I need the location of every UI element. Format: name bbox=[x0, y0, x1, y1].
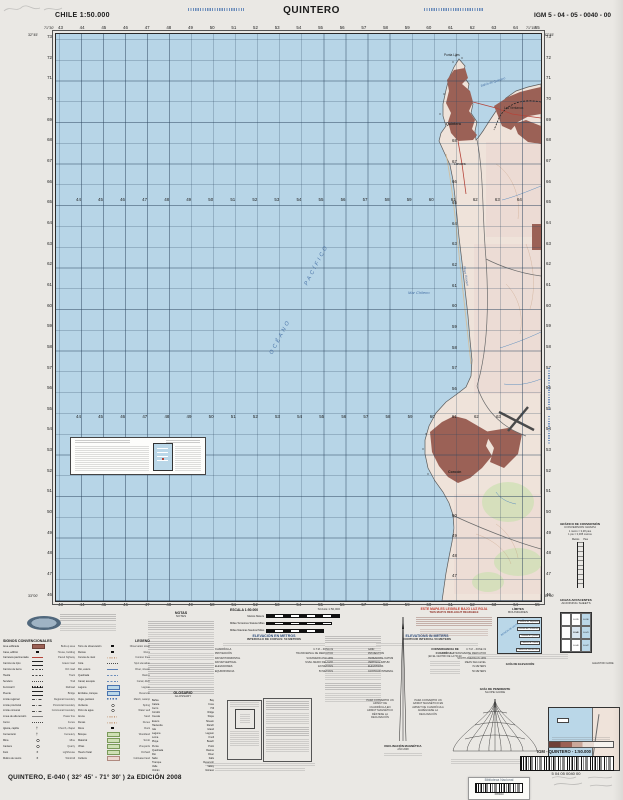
grid-number: 64 bbox=[42, 221, 52, 225]
grid-numbers-top: 4344454647484950515253545556575859606162… bbox=[58, 25, 540, 30]
grid-number: 46 bbox=[120, 414, 125, 419]
elev-interval-en: CONTOUR INTERVAL 50 METERS bbox=[368, 638, 486, 642]
grid-number: 65 bbox=[452, 201, 457, 205]
grid-number: 55 bbox=[318, 25, 323, 30]
grid-number: 62 bbox=[473, 197, 478, 202]
conversion-ruler bbox=[577, 542, 584, 588]
grid-number: 53 bbox=[275, 602, 280, 607]
boundary-item: Comuna de Quintero bbox=[519, 634, 540, 638]
grid-number: 65 bbox=[546, 200, 556, 204]
grid-number: 50 bbox=[42, 510, 52, 514]
grid-number: 53 bbox=[274, 197, 279, 202]
grid-number: 47 bbox=[145, 602, 150, 607]
legend-symbol bbox=[32, 668, 43, 671]
map-label: Las Ventanas bbox=[504, 106, 523, 110]
legend-symbol bbox=[32, 674, 43, 677]
azimuth-note-right: PARA CONVERTIR UN AZIMUT MAGNÉTICO EN AZ… bbox=[412, 699, 444, 716]
grid-number: 50 bbox=[210, 602, 215, 607]
legend-row: Molino de vientoWindmill bbox=[3, 755, 75, 761]
grid-id-box bbox=[227, 700, 262, 760]
grid-number: 49 bbox=[452, 534, 457, 538]
grid-number: 50 bbox=[209, 414, 214, 419]
sheet-title: QUINTERO bbox=[0, 5, 623, 16]
grid-number: 48 bbox=[166, 25, 171, 30]
grid-number: 49 bbox=[42, 531, 52, 535]
boundaries-title-en: BOUNDARIES bbox=[486, 611, 550, 615]
legend-symbol bbox=[107, 674, 118, 677]
grid-number: 59 bbox=[405, 602, 410, 607]
map-label: OCÉANO bbox=[269, 318, 293, 355]
scale-title-en: SCALE 1:50,000 bbox=[318, 608, 340, 612]
legend-symbol bbox=[107, 750, 120, 755]
grid-number: 60 bbox=[42, 304, 52, 308]
adjoining-sheet-cell bbox=[561, 613, 571, 626]
grid-number: 63 bbox=[452, 242, 457, 246]
grid-number: 57 bbox=[363, 414, 368, 419]
grid-number: 59 bbox=[452, 325, 457, 329]
library-stamp: Biblioteca Nacional 1565040 bbox=[468, 777, 530, 800]
boundaries-block: LÍMITES BOUNDARIES bbox=[486, 607, 550, 615]
grid-number: 46 bbox=[123, 602, 128, 607]
grid-number: 58 bbox=[452, 346, 457, 350]
map-label: Playa Ritoque bbox=[462, 266, 469, 286]
map-label: PACÍFICO bbox=[303, 243, 330, 286]
adjoining-sheet-cell: E-036 bbox=[581, 613, 591, 626]
igm-barcode-label: IGM - QUINTERO - 1:50.000 bbox=[514, 749, 614, 754]
boundary-item: Comuna de Puchuncaví bbox=[517, 627, 540, 631]
grid-numbers-left: 7372717069686766656463626160595857565554… bbox=[42, 35, 52, 597]
grid-number: 51 bbox=[42, 489, 52, 493]
legend-symbol bbox=[32, 727, 43, 730]
grid-number: 52 bbox=[253, 25, 258, 30]
grid-number: 57 bbox=[361, 25, 366, 30]
grid-number: 48 bbox=[164, 197, 169, 202]
grid-number: 52 bbox=[253, 414, 258, 419]
grid-number: 58 bbox=[383, 25, 388, 30]
map-area: OCÉANOPACÍFICOMar ChilenoPunta LilesBahí… bbox=[55, 33, 542, 602]
grid-number: 51 bbox=[546, 489, 556, 493]
scale-bar-nautical bbox=[266, 629, 324, 633]
igm-logo bbox=[27, 616, 61, 630]
grid-number: 46 bbox=[42, 593, 52, 597]
legend-symbol bbox=[107, 645, 118, 648]
adjoining-sheet-cell: E-047 bbox=[581, 639, 591, 652]
scale-bar3-label: Millas Náuticas Nautical Miles bbox=[230, 629, 264, 632]
legend-symbol bbox=[32, 745, 43, 748]
conversion-unit-pies: Pies bbox=[583, 538, 588, 541]
legend-symbol bbox=[32, 680, 43, 683]
grid-number: 45 bbox=[98, 414, 103, 419]
inset-map-thumbnail bbox=[153, 443, 173, 471]
legend-symbol bbox=[32, 661, 43, 666]
legend-symbol bbox=[32, 686, 43, 689]
grid-number: 64 bbox=[452, 222, 457, 226]
grid-number: 65 bbox=[42, 200, 52, 204]
adjoining-sheet-cell: E-040 bbox=[571, 626, 581, 639]
legend-symbol bbox=[32, 656, 43, 659]
grid-number: 59 bbox=[42, 324, 52, 328]
grid-number: 73 bbox=[546, 35, 556, 39]
grid-number: 54 bbox=[42, 427, 52, 431]
grid-number: 60 bbox=[546, 304, 556, 308]
igm-barcode bbox=[520, 756, 614, 771]
azimuth-note-left: PARA CONVERTIR UN AZIMUT DE CUADRÍCULA E… bbox=[366, 699, 394, 719]
elev-interval-es: INTERVALO DE CURVAS: 50 METROS bbox=[215, 638, 333, 642]
corner-lat-nw: 32°45' bbox=[28, 33, 38, 37]
margin-note-vertical2 bbox=[548, 416, 550, 444]
grid-number: 52 bbox=[252, 197, 257, 202]
grid-number: 61 bbox=[452, 414, 457, 419]
grid-number: 53 bbox=[275, 25, 280, 30]
grid-number: 58 bbox=[42, 345, 52, 349]
grid-number: 51 bbox=[231, 414, 236, 419]
map-label: Mar Chileno bbox=[408, 290, 430, 295]
grid-number: 60 bbox=[430, 414, 435, 419]
conversion-unit-metros: Metros bbox=[572, 538, 579, 541]
grid-number: 56 bbox=[340, 602, 345, 607]
grid-number: 46 bbox=[546, 593, 556, 597]
grid-number: 44 bbox=[76, 414, 81, 419]
grid-number: 60 bbox=[429, 197, 434, 202]
grid-number: 52 bbox=[546, 469, 556, 473]
grid-number: 63 bbox=[42, 242, 52, 246]
declination-label: DECLINACIÓN MAGNÉTICA AÑO 2008 bbox=[374, 744, 432, 758]
elevguide-title-es: GUÍA DE ELEVACIÓN bbox=[498, 662, 542, 666]
grid-number: 47 bbox=[142, 414, 147, 419]
legend-symbol bbox=[107, 656, 118, 659]
grid-number: 64 bbox=[546, 221, 556, 225]
scale-bar1-label: Metros Meters bbox=[230, 615, 264, 618]
legend-row: CultivosCultivated land bbox=[78, 755, 150, 761]
grid-number: 44 bbox=[80, 602, 85, 607]
grid-number: 56 bbox=[452, 387, 457, 391]
legend-symbol bbox=[32, 733, 43, 736]
library-stamp-number: 1565040 bbox=[469, 793, 529, 796]
grid-number: 55 bbox=[319, 197, 324, 202]
sheet-code: IGM 5 - 04 - 05 - 0040 - 00 bbox=[534, 12, 611, 19]
grid-number: 45 bbox=[101, 602, 106, 607]
grid-convergence-block: CONVERGENCIA DE CUADRÍCULA (EN EL CENTRO… bbox=[424, 647, 466, 677]
grid-number: 61 bbox=[42, 283, 52, 287]
grid-number: 56 bbox=[42, 386, 52, 390]
red-note-en: THIS MAP IS RED-LIGHT READABLE bbox=[412, 611, 496, 615]
adjoining-title-en: ADJOINING SHEETS bbox=[546, 602, 606, 606]
grid-number: 66 bbox=[452, 180, 457, 184]
legend-symbol bbox=[107, 744, 120, 749]
grid-number: 50 bbox=[210, 25, 215, 30]
grid-number: 63 bbox=[496, 414, 501, 419]
grid-number: 56 bbox=[341, 414, 346, 419]
boundaries-caption bbox=[468, 654, 568, 659]
grid-number: 47 bbox=[452, 574, 457, 578]
grid-number: 70 bbox=[42, 97, 52, 101]
boundary-item: Comuna de Viña del Mar bbox=[516, 648, 540, 652]
legend-symbol bbox=[107, 691, 120, 696]
grid-number: 58 bbox=[546, 345, 556, 349]
grid-number: 48 bbox=[452, 554, 457, 558]
grid-number: 58 bbox=[386, 414, 391, 419]
grid-number: 54 bbox=[296, 602, 301, 607]
adjoining-sheets-grid: E-035E-036E-040E-041E-046E-047 bbox=[560, 612, 592, 653]
red-light-note: ESTE MAPA ES LEGIBLE BAJO LUZ ROJA THIS … bbox=[412, 607, 496, 637]
legend-symbol bbox=[32, 651, 43, 654]
grid-number: 68 bbox=[42, 138, 52, 142]
grid-number: 62 bbox=[42, 262, 52, 266]
grid-number: 66 bbox=[546, 180, 556, 184]
grid-number: 55 bbox=[319, 414, 324, 419]
grid-number: 70 bbox=[546, 97, 556, 101]
grid-number: 62 bbox=[546, 262, 556, 266]
boundary-item: Comuna de Concón bbox=[520, 641, 540, 645]
grid-number: 61 bbox=[452, 284, 457, 288]
legend-symbol bbox=[107, 662, 118, 665]
grid-number: 72 bbox=[42, 56, 52, 60]
grid-number: 56 bbox=[340, 25, 345, 30]
legend-column-2: LEGEND Torre de observaciónObservation t… bbox=[78, 639, 150, 761]
grid-number: 59 bbox=[408, 414, 413, 419]
grid-number: 62 bbox=[470, 25, 475, 30]
grid-number: 49 bbox=[186, 197, 191, 202]
grid-number: 52 bbox=[42, 469, 52, 473]
scale-bar-statute bbox=[266, 622, 332, 626]
grid-number: 63 bbox=[546, 242, 556, 246]
grid-numbers-inner-row2: 4445464748495051525354555657585960616263 bbox=[76, 414, 501, 419]
grid-number: 59 bbox=[407, 197, 412, 202]
grid-numbers-inner-col: 68676665646362616059585756 bbox=[452, 139, 457, 391]
grid-number: 62 bbox=[474, 414, 479, 419]
grid-number: 64 bbox=[513, 25, 518, 30]
grid-number: 51 bbox=[231, 602, 236, 607]
grid-number: 48 bbox=[42, 551, 52, 555]
grid-number: 45 bbox=[101, 25, 106, 30]
grid-number: 54 bbox=[297, 414, 302, 419]
print-color-bar bbox=[548, 741, 614, 748]
legend-symbol bbox=[107, 685, 120, 690]
legend-symbol bbox=[107, 709, 118, 712]
sheet-footer: QUINTERO, E-040 ( 32° 45' - 71° 30' ) 2a… bbox=[8, 774, 182, 781]
grid-number: 60 bbox=[452, 304, 457, 308]
legend-symbol bbox=[32, 704, 43, 707]
library-stamp-barcode bbox=[475, 783, 523, 793]
grid-number: 57 bbox=[452, 366, 457, 370]
grid-number: 43 bbox=[58, 602, 63, 607]
grid-number: 57 bbox=[42, 366, 52, 370]
scale-block: ESCALA 1:50.000 SCALE 1:50,000 Metros Me… bbox=[230, 608, 340, 633]
legend-symbol bbox=[107, 727, 118, 730]
grid-number: 71 bbox=[546, 76, 556, 80]
map-label: Quintero bbox=[446, 122, 461, 126]
grid-number: 47 bbox=[142, 197, 147, 202]
conversion-graph: GRÁFICO DE CONVERSIÓN CONVERSION GRAPH 1… bbox=[544, 522, 616, 588]
grid-number: 49 bbox=[187, 414, 192, 419]
grid-number: 48 bbox=[166, 602, 171, 607]
grid-number: 51 bbox=[230, 197, 235, 202]
grid-number: 45 bbox=[98, 197, 103, 202]
corner-lon-nw: 71°30' bbox=[44, 26, 54, 30]
legend-symbol bbox=[32, 751, 43, 754]
grid-number: 44 bbox=[80, 25, 85, 30]
grid-number: 53 bbox=[546, 448, 556, 452]
tech-row: EQUIDISTANCIA50 METROS bbox=[215, 670, 333, 674]
grid-number: 60 bbox=[426, 25, 431, 30]
print-note-right bbox=[424, 8, 484, 11]
grid-number: 57 bbox=[363, 197, 368, 202]
grid-number: 58 bbox=[383, 602, 388, 607]
grid-number: 48 bbox=[164, 414, 169, 419]
legend-symbol bbox=[32, 698, 43, 701]
adjoining-sheet-cell bbox=[561, 639, 571, 652]
declination-diagram bbox=[396, 615, 410, 743]
grid-number: 52 bbox=[253, 602, 258, 607]
legend-symbol bbox=[107, 732, 120, 737]
map-labels: OCÉANOPACÍFICOMar ChilenoPunta LilesBahí… bbox=[56, 34, 541, 601]
grid-number: 54 bbox=[296, 197, 301, 202]
grid-number: 51 bbox=[231, 25, 236, 30]
scale-bar2-label: Millas Terrestres Statute Miles bbox=[230, 622, 264, 625]
adjoining-sheet-cell: E-041 bbox=[581, 626, 591, 639]
slope-curves bbox=[445, 695, 545, 753]
notes-title-en: NOTES bbox=[148, 615, 214, 619]
grid-number: 59 bbox=[405, 25, 410, 30]
scale-bar-meters bbox=[266, 614, 340, 618]
adjoining-sheets-block: HOJAS ADYACENTES ADJOINING SHEETS bbox=[546, 598, 606, 606]
grid-numbers-inner-col2: 50494847 bbox=[452, 514, 457, 578]
grid-number: 65 bbox=[535, 25, 540, 30]
notes-box-2 bbox=[263, 698, 312, 762]
legend-symbol bbox=[107, 680, 118, 683]
grid-number: 67 bbox=[42, 159, 52, 163]
legend-symbol bbox=[107, 738, 120, 743]
grid-number: 71 bbox=[42, 76, 52, 80]
grid-number: 68 bbox=[546, 138, 556, 142]
print-color-labels bbox=[552, 737, 610, 740]
grid-number: 63 bbox=[491, 25, 496, 30]
notes-block: NOTAS NOTES bbox=[148, 611, 214, 694]
grid-number: 53 bbox=[275, 414, 280, 419]
adjoining-sheet-cell: E-035 bbox=[571, 613, 581, 626]
legend-symbol bbox=[32, 739, 43, 742]
boundary-item: Provincia de Valparaíso bbox=[517, 620, 540, 624]
grid-number: 67 bbox=[546, 159, 556, 163]
grid-number: 49 bbox=[188, 25, 193, 30]
grid-numbers-right: 7372717069686766656463626160595857565554… bbox=[546, 35, 556, 597]
legend-symbol bbox=[32, 709, 43, 712]
margin-note-vertical bbox=[548, 368, 550, 410]
paper-edge bbox=[613, 0, 623, 800]
grid-number: 57 bbox=[361, 602, 366, 607]
grid-number: 49 bbox=[188, 602, 193, 607]
grid-number: 64 bbox=[517, 197, 522, 202]
adjoining-sheet-cell: E-046 bbox=[571, 639, 581, 652]
map-label: Concón bbox=[448, 470, 461, 474]
legend-symbol bbox=[107, 715, 118, 718]
legend-symbol bbox=[107, 704, 118, 707]
map-sheet: CHILE 1:50.000 QUINTERO IGM 5 - 04 - 05 … bbox=[0, 0, 623, 800]
conversion-eq2: 1 pie = 0,305 metros bbox=[544, 533, 616, 536]
grid-number: 56 bbox=[341, 197, 346, 202]
glossary-block: GLOSARIO GLOSSARY BahíaBayCaletaCoveCerr… bbox=[152, 691, 214, 774]
convergence-sub: (EN EL CENTRO DE LA HOJA) bbox=[424, 655, 466, 659]
adjoining-sheet-cell bbox=[561, 626, 571, 639]
grid-number: 61 bbox=[546, 283, 556, 287]
legend-symbol bbox=[32, 691, 43, 696]
inset-info-box bbox=[70, 437, 206, 475]
grid-number: 61 bbox=[448, 25, 453, 30]
grid-number: 59 bbox=[546, 324, 556, 328]
grid-number: 46 bbox=[123, 25, 128, 30]
pencil-note-bottom bbox=[548, 772, 616, 794]
map-label: Punta Liles bbox=[444, 53, 460, 57]
print-note-left bbox=[188, 8, 244, 11]
boundaries-map: REGIÓN DE VALPARAÍSO Provincia de Valpar… bbox=[497, 617, 542, 654]
legend-symbol bbox=[107, 651, 118, 654]
grid-number: 67 bbox=[452, 160, 457, 164]
legend-symbol bbox=[32, 715, 43, 718]
legend-symbol bbox=[32, 721, 43, 724]
grid-number: 43 bbox=[58, 25, 63, 30]
corner-lat-sw: 33°00' bbox=[28, 594, 38, 598]
grid-number: 46 bbox=[120, 197, 125, 202]
legend-symbol bbox=[32, 757, 43, 760]
scale-title-es: ESCALA 1:50.000 bbox=[230, 608, 258, 612]
legend-symbol bbox=[32, 644, 45, 649]
grid-number: 68 bbox=[452, 139, 457, 143]
legend-symbol bbox=[107, 668, 118, 671]
legend-symbol bbox=[107, 721, 118, 724]
grid-number: 47 bbox=[42, 572, 52, 576]
grid-number: 50 bbox=[208, 197, 213, 202]
credits-block bbox=[60, 614, 116, 631]
technical-notes-column bbox=[325, 636, 381, 702]
grid-number: 58 bbox=[385, 197, 390, 202]
legend-symbol bbox=[107, 756, 120, 761]
grid-number: 54 bbox=[296, 25, 301, 30]
legend-symbol bbox=[107, 698, 118, 701]
grid-number: 50 bbox=[452, 514, 457, 518]
map-label: Bahía de Quintero bbox=[480, 76, 506, 88]
grid-number: 62 bbox=[452, 263, 457, 267]
grid-number: 66 bbox=[42, 180, 52, 184]
grid-number: 53 bbox=[42, 448, 52, 452]
elevation-info-es: ELEVACIÓN EN METROS INTERVALO DE CURVAS:… bbox=[215, 634, 333, 674]
grid-number: 47 bbox=[145, 25, 150, 30]
grid-number: 50 bbox=[546, 510, 556, 514]
legend-column-1: SIGNOS CONVENCIONALES Área edificadaBuil… bbox=[3, 639, 75, 761]
grid-number: 72 bbox=[546, 56, 556, 60]
bottom-caption bbox=[205, 763, 315, 771]
grid-number: 44 bbox=[76, 197, 81, 202]
grid-number: 55 bbox=[42, 407, 52, 411]
grid-number: 69 bbox=[546, 118, 556, 122]
grid-number: 73 bbox=[42, 35, 52, 39]
convergence-title: CONVERGENCIA DE CUADRÍCULA bbox=[424, 647, 466, 655]
grid-number: 69 bbox=[42, 118, 52, 122]
grid-number: 63 bbox=[495, 197, 500, 202]
